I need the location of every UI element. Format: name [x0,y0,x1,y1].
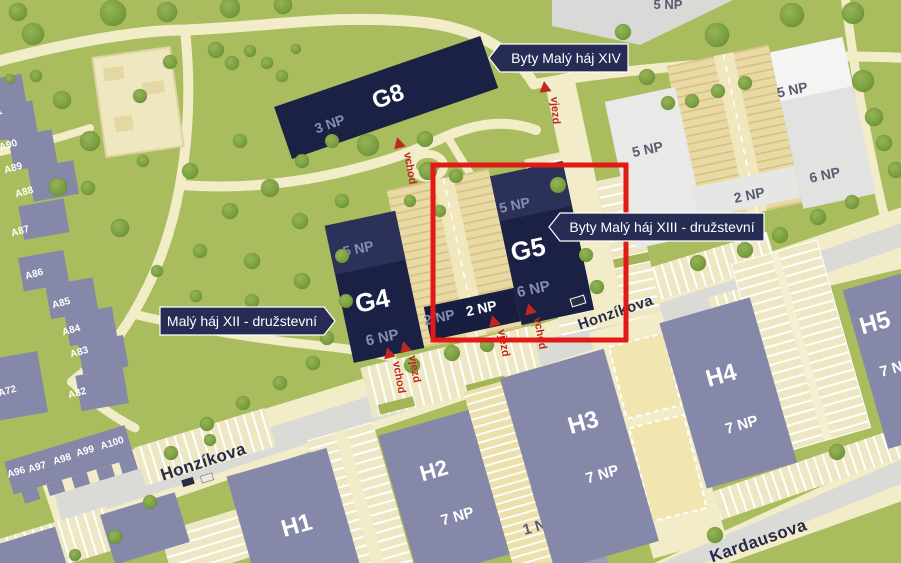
callout-xiv: Byty Malý háj XIV [489,44,628,72]
xii-callout-label: Malý háj XII - družstevní [167,313,317,329]
callout-xii: Malý háj XII - družstevní [160,307,335,335]
vjezd-label-north: vjezd [548,96,562,124]
xiv-callout-label: Byty Malý háj XIV [511,50,621,66]
site-plan-map: 5 NP 3 NP G8 H1 H2 7 NP [0,0,901,563]
map-canvas: 5 NP 3 NP G8 H1 H2 7 NP [0,0,901,563]
north-floors: 5 NP [654,0,683,12]
callout-xiii: Byty Malý háj XIII - družstevní [549,213,764,241]
xiii-callout-label: Byty Malý háj XIII - družstevní [569,219,754,235]
